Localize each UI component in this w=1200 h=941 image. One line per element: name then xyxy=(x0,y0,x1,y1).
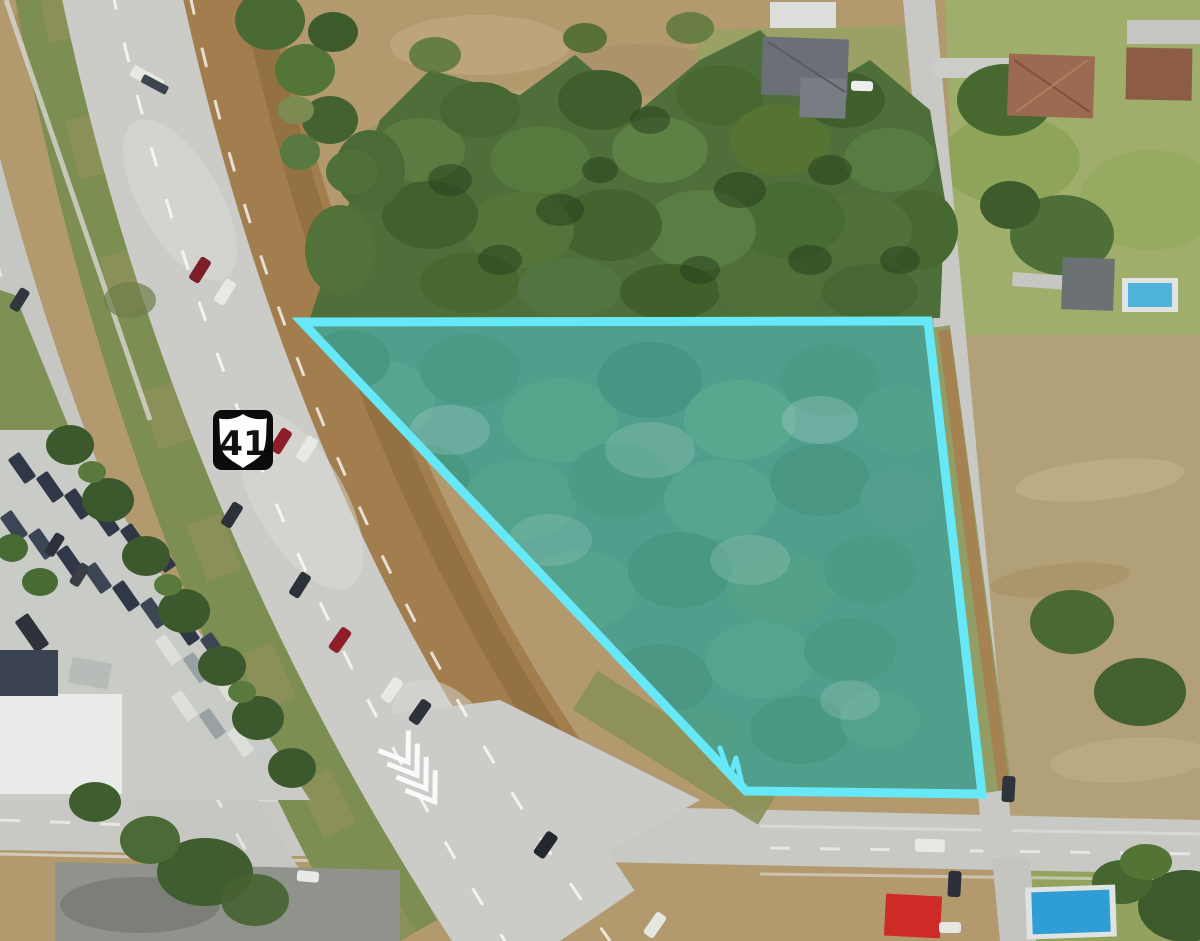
bright-pool xyxy=(1031,890,1110,935)
route-number: 41 xyxy=(219,424,266,464)
red-canopy xyxy=(884,894,942,939)
us-route-41-shield: 41 xyxy=(213,410,273,470)
blue-shed xyxy=(0,650,58,696)
house-corner-roof xyxy=(1126,47,1193,100)
white-shed-roof xyxy=(770,2,836,28)
aerial-map[interactable]: 41 xyxy=(0,0,1200,941)
backyard-pool xyxy=(1128,283,1172,307)
house-brown-roof xyxy=(1007,54,1095,119)
warehouse-building xyxy=(0,694,122,794)
